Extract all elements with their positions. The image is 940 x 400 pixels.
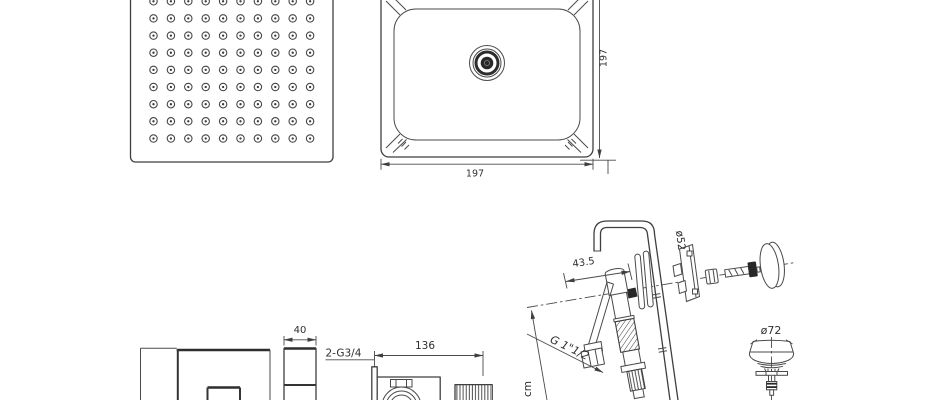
corner-chamfers bbox=[386, 0, 588, 153]
dimension-height-cm: cm bbox=[522, 311, 547, 400]
exploded-assembly-view: ø52 43.5 G 1"1/2 cm bbox=[522, 221, 795, 400]
top-view-outer-square bbox=[381, 0, 593, 157]
mixer-front-view bbox=[141, 348, 271, 400]
drain-plug-body bbox=[749, 340, 793, 395]
technical-drawing-sheet: 197 197 40 2-G3/4 bbox=[0, 0, 940, 400]
dimension-mixer-depth: 40 bbox=[284, 325, 316, 346]
mixer-section-body bbox=[372, 367, 492, 400]
mixer-length-label: 136 bbox=[415, 340, 435, 352]
wall-flange bbox=[372, 367, 377, 400]
shower-head-top-view: 197 197 bbox=[381, 0, 616, 180]
oval-cover-plate bbox=[757, 241, 787, 290]
face-plate-outline bbox=[131, 0, 334, 162]
dimension-top-view-height: 197 bbox=[580, 0, 616, 174]
inlet-thread-label: 2-G3/4 bbox=[326, 348, 362, 360]
technical-drawing-canvas: 197 197 40 2-G3/4 bbox=[0, 0, 940, 400]
bolt-collar bbox=[747, 261, 758, 277]
mixer-depth-label: 40 bbox=[294, 325, 307, 336]
arm-offset-label: 43.5 bbox=[572, 256, 596, 270]
shower-head-face-view bbox=[131, 0, 334, 162]
aerator-nozzle bbox=[470, 46, 505, 81]
mixer-section-view: 2-G3/4 136 bbox=[326, 340, 493, 400]
top-view-height-label: 197 bbox=[599, 49, 610, 67]
dimension-top-view-width: 197 bbox=[381, 159, 593, 180]
wall-elbow-column bbox=[603, 267, 651, 400]
thread-band bbox=[615, 318, 639, 352]
outlet-thread bbox=[455, 385, 492, 400]
drain-diameter-label: ø72 bbox=[761, 324, 782, 337]
drain-plug-view: ø72 bbox=[749, 324, 793, 400]
escutcheon-diameter-label: ø52 bbox=[673, 230, 687, 251]
mixer-handle bbox=[208, 388, 241, 400]
height-unit-label: cm bbox=[522, 381, 534, 397]
mixer-backplate bbox=[141, 348, 177, 400]
wall-bracket bbox=[673, 245, 700, 302]
drain-crossbar bbox=[756, 372, 788, 376]
gasket-seal bbox=[627, 288, 638, 299]
inlet-thread-callout: 2-G3/4 bbox=[326, 348, 375, 360]
mixer-side-view: 40 bbox=[284, 325, 316, 400]
valve-cartridge bbox=[382, 387, 421, 400]
dimension-mixer-length: 136 bbox=[375, 340, 484, 376]
top-view-width-label: 197 bbox=[466, 169, 484, 180]
drain-thread-tip bbox=[767, 382, 777, 390]
fixing-nut bbox=[705, 269, 718, 284]
fixing-bolt bbox=[724, 261, 761, 281]
nozzle-grid bbox=[150, 0, 314, 142]
